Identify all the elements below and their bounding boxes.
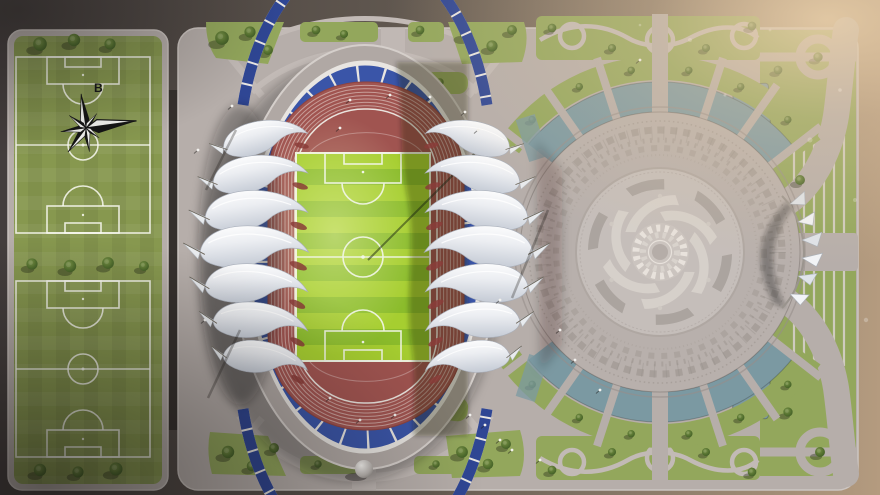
stadium-aerial-render: B: [0, 0, 880, 495]
render-canvas: B: [0, 0, 880, 495]
vignette-top-left: [0, 0, 880, 495]
